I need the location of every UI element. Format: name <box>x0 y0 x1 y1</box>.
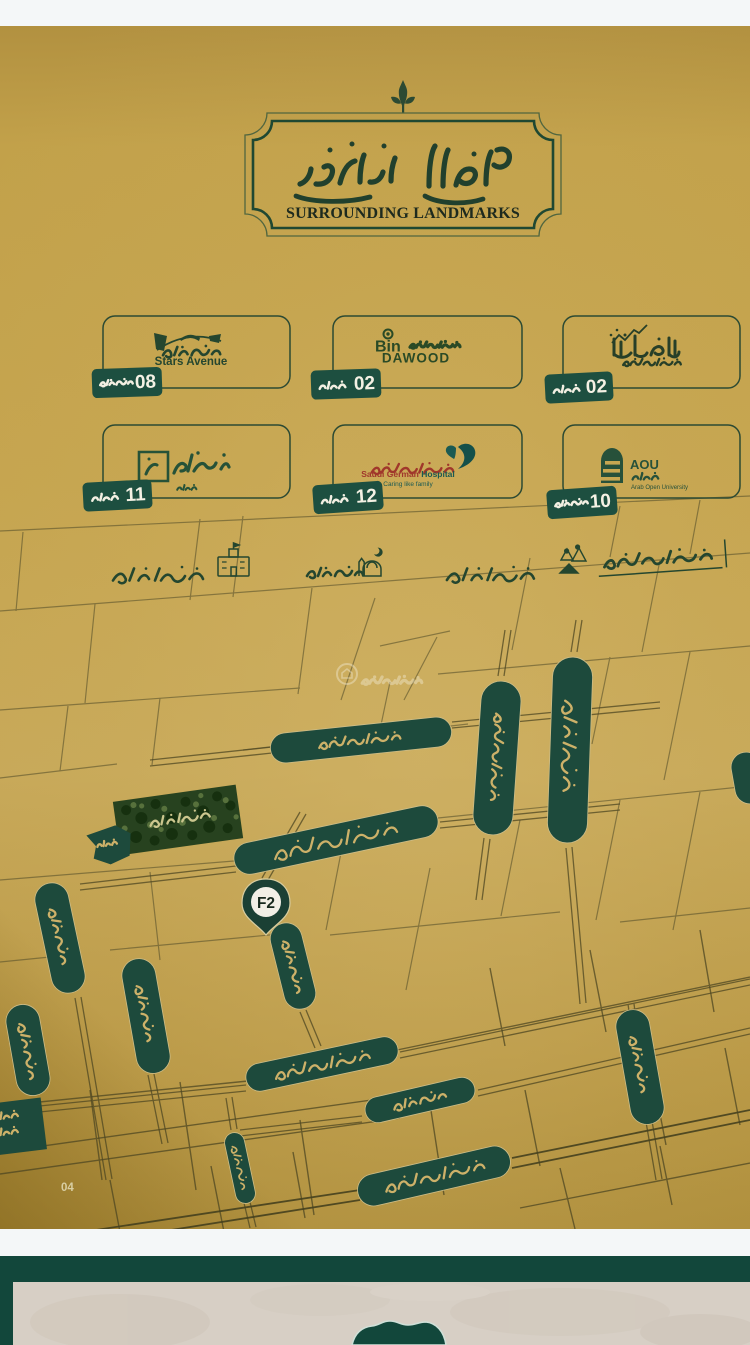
svg-text:Stars Avenue: Stars Avenue <box>155 356 228 368</box>
svg-text:11: 11 <box>125 484 147 506</box>
svg-text:04: 04 <box>61 1182 74 1194</box>
svg-text:Saudi German Hospital: Saudi German Hospital <box>361 469 455 479</box>
svg-text:10: 10 <box>589 491 612 513</box>
svg-text:DAWOOD: DAWOOD <box>382 351 450 366</box>
svg-text:F2: F2 <box>257 895 275 912</box>
svg-text:12: 12 <box>355 486 378 508</box>
svg-text:08: 08 <box>135 371 157 393</box>
svg-text:AOU: AOU <box>630 457 659 472</box>
svg-text:Arab Open University: Arab Open University <box>631 485 688 491</box>
svg-text:02: 02 <box>354 373 376 395</box>
svg-text:02: 02 <box>585 376 607 398</box>
svg-text:SURROUNDING LANDMARKS: SURROUNDING LANDMARKS <box>286 205 520 222</box>
svg-text:Caring like family: Caring like family <box>383 481 433 488</box>
